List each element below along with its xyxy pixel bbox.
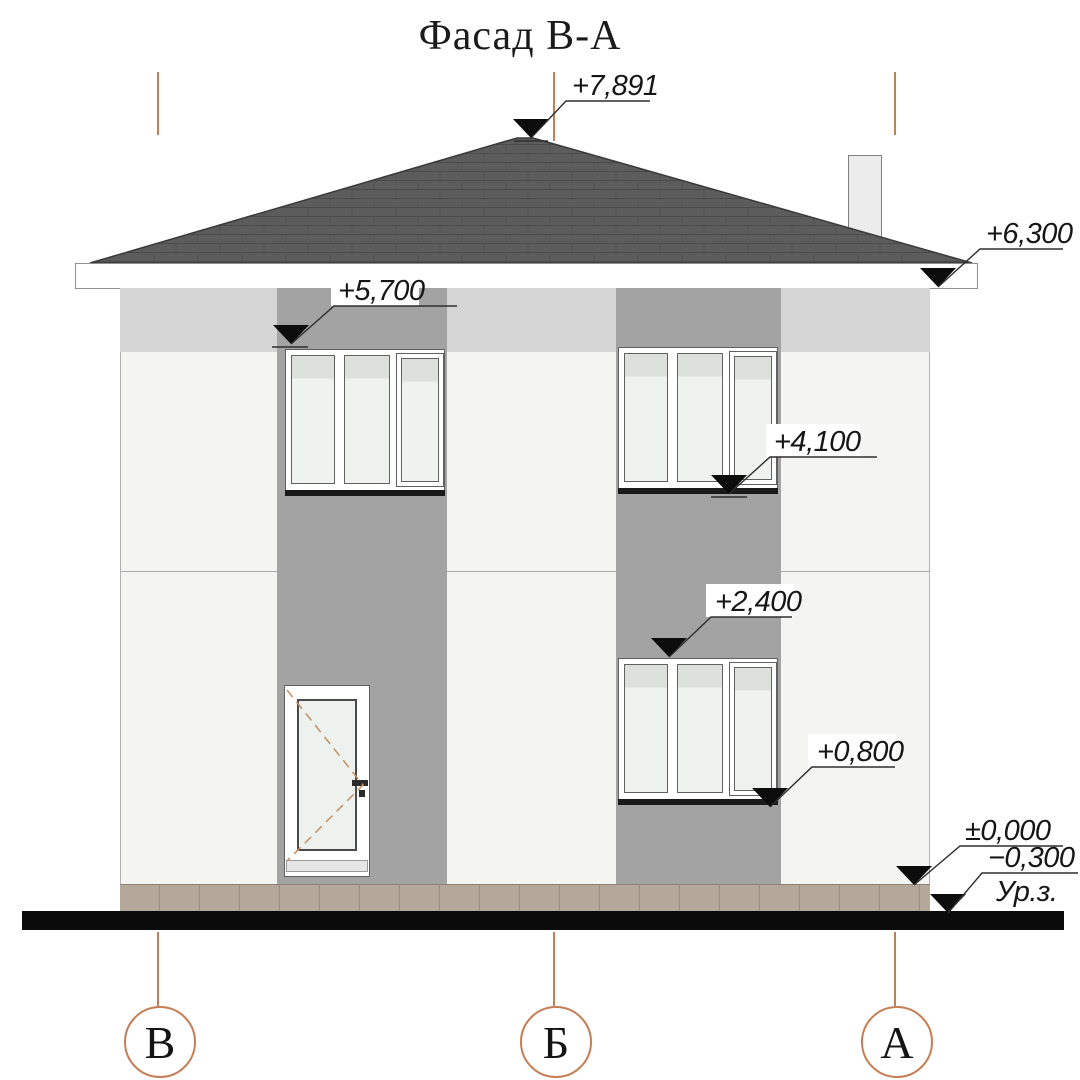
axis-bubble-b: Б [520,1006,592,1078]
axis-line-top-b [553,72,555,141]
marker-value: +7,891 [572,70,659,102]
floor-slab-line [120,571,930,572]
window-sill [618,799,778,805]
window-sash [396,353,444,487]
door-lock-icon [359,790,365,797]
marker-ground-label: Ур.з. [995,876,1057,908]
ground-line [22,911,1064,930]
axis-label: В [145,1016,176,1069]
chimney [848,155,882,245]
plinth [120,884,930,912]
facade-drawing: Фасад В-А [0,0,1080,1080]
marker-value: +6,300 [986,218,1073,250]
elevation-marker-ground-level: −0,300 Ур.з. [930,842,1078,913]
door-handle-icon [352,780,368,786]
drawing-title: Фасад В-А [300,12,740,60]
roof-slope [90,138,972,263]
window-pane [624,353,668,482]
eaves-band [75,263,978,289]
marker-value: −0,300 [988,842,1075,874]
axis-line-bottom-b [553,932,555,1006]
window-pane [344,355,390,484]
axis-line-bottom-v [157,932,159,1006]
facade-wall [120,288,930,884]
window-pane [734,356,772,480]
window-upper-left [285,349,445,491]
wall-top-band [120,288,930,352]
window-pane [677,664,723,793]
marker-value: ±0,000 [965,815,1051,847]
window-sill [618,488,778,494]
axis-bubble-v: В [124,1006,196,1078]
entrance-door [284,685,370,877]
axis-bubble-a: А [861,1006,933,1078]
window-pane [291,355,335,484]
window-pane [401,358,439,482]
axis-label: Б [543,1016,569,1069]
axis-line-top-v [157,72,159,135]
window-sash [729,662,777,796]
window-pane [624,664,668,793]
axis-label: А [880,1016,913,1069]
axis-line-top-a [894,72,896,135]
door-glass [297,699,357,851]
window-sill [285,490,445,496]
window-pane [734,667,772,791]
door-threshold [286,860,368,872]
elevation-marker-roof-peak: +7,891 [513,70,659,141]
window-sash [729,351,777,485]
window-pane [677,353,723,482]
window-lower-right [618,658,778,800]
window-upper-right [618,347,778,489]
axis-line-bottom-a [894,932,896,1006]
